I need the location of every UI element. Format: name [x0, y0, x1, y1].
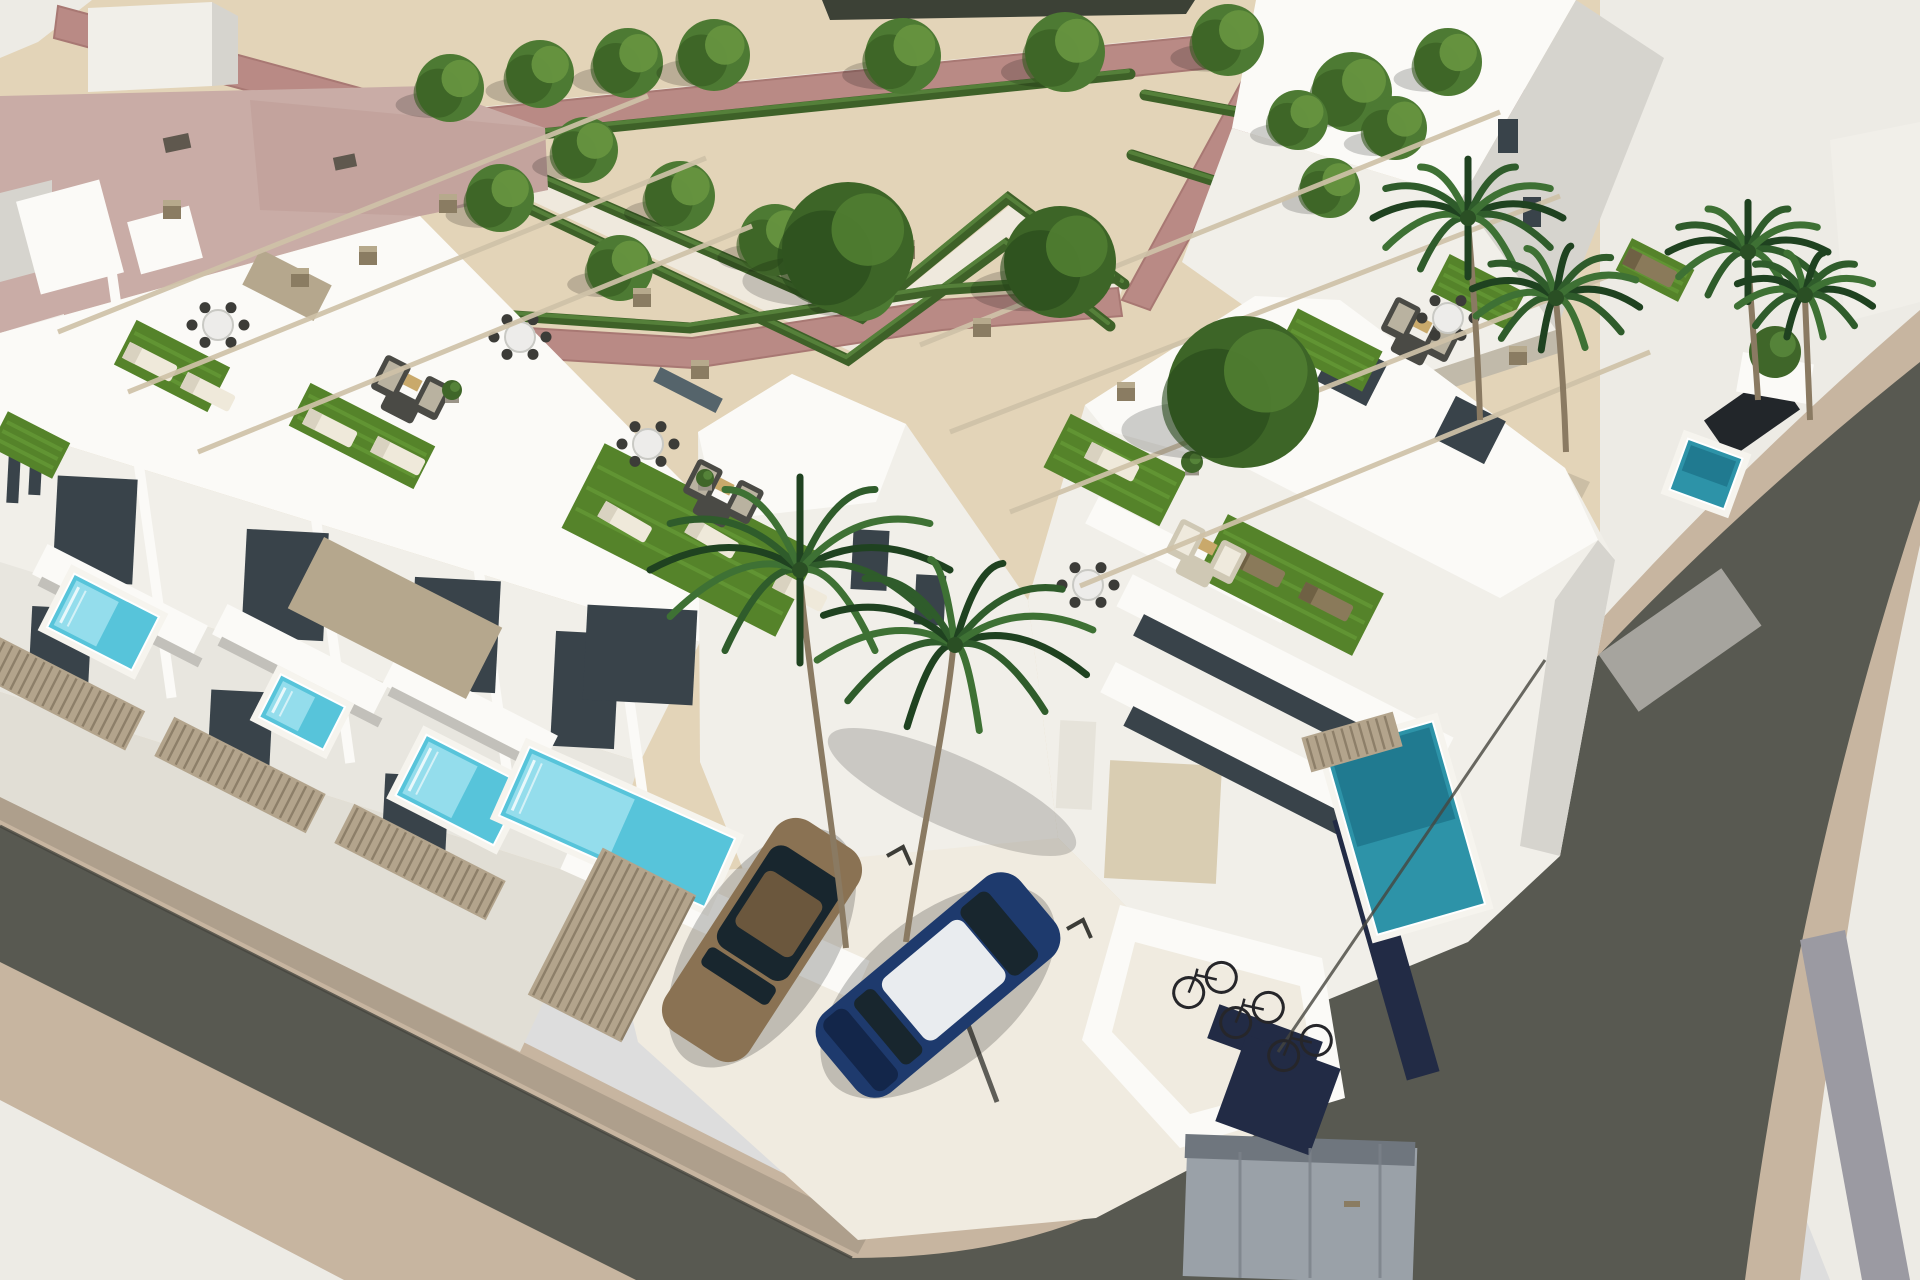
pergola-post-top — [633, 288, 651, 294]
pergola-post — [291, 273, 309, 287]
pergola-post — [1509, 351, 1527, 365]
tree-canopy-light — [1219, 10, 1259, 50]
pergola-post-top — [691, 360, 709, 366]
tree-canopy-light — [577, 123, 613, 159]
pergola-post-top — [1117, 382, 1135, 388]
dining-chair — [1070, 562, 1081, 573]
pergola-post — [359, 251, 377, 265]
dining-chair — [1096, 597, 1107, 608]
pergola-post-top — [1509, 346, 1527, 352]
tree-canopy-light — [832, 193, 905, 266]
small-building — [88, 2, 212, 92]
render-canvas — [0, 0, 1920, 1280]
pergola-post — [691, 365, 709, 379]
dining-chair — [630, 421, 641, 432]
pergola-post-top — [973, 318, 991, 324]
pergola-post — [439, 199, 457, 213]
pergola-post-top — [163, 200, 181, 206]
tree-canopy-light — [1387, 101, 1422, 136]
dining-chair — [656, 421, 667, 432]
plant-light — [703, 471, 712, 480]
pergola-post — [633, 293, 651, 307]
pergola-post — [1117, 387, 1135, 401]
pergola-post — [973, 323, 991, 337]
palm-crown-center — [1548, 290, 1564, 306]
dining-chair — [187, 320, 198, 331]
tree-canopy-light — [1224, 329, 1308, 413]
dining-chair — [200, 337, 211, 348]
dining-chair — [656, 456, 667, 467]
dining-chair — [1070, 597, 1081, 608]
tree-canopy-light — [1055, 19, 1099, 63]
dining-chair — [617, 439, 628, 450]
dining-chair — [1417, 313, 1428, 324]
tree-canopy-light — [1291, 95, 1324, 128]
pergola-post-top — [291, 268, 309, 274]
dining-table — [203, 310, 233, 340]
dining-chair — [541, 332, 552, 343]
tree-canopy-light — [619, 34, 658, 72]
tree-canopy-light — [705, 25, 745, 65]
palm-crown-center — [947, 637, 963, 653]
tree-canopy-light — [1440, 34, 1477, 71]
tree-canopy-light — [532, 46, 569, 83]
small-building-side — [212, 2, 238, 86]
palm-crown-center — [792, 562, 808, 578]
palm-crown-center — [1460, 210, 1476, 226]
tree-canopy-light — [492, 170, 529, 207]
tree-canopy-light — [1046, 216, 1108, 278]
pergola-post-top — [359, 246, 377, 252]
pergola-post-top — [439, 194, 457, 200]
dining-chair — [1096, 562, 1107, 573]
dining-chair — [200, 302, 211, 313]
tree-canopy-light — [671, 167, 710, 206]
plant-light — [1770, 331, 1796, 357]
glass-door — [583, 605, 698, 706]
tree-canopy-light — [442, 60, 479, 97]
tree-canopy-light — [1342, 59, 1386, 103]
dining-chair — [1109, 580, 1120, 591]
dining-chair — [226, 302, 237, 313]
pergola-post — [163, 205, 181, 219]
window — [1498, 119, 1518, 153]
palm-crown-center — [1797, 287, 1813, 303]
dining-chair — [239, 320, 250, 331]
dining-chair — [1456, 295, 1467, 306]
garage-door — [1104, 760, 1222, 884]
dining-chair — [1430, 295, 1441, 306]
dining-chair — [528, 349, 539, 360]
plant-light — [450, 382, 460, 392]
door — [1056, 720, 1097, 810]
dining-table — [633, 429, 663, 459]
dining-chair — [630, 456, 641, 467]
tree-canopy-light — [894, 24, 936, 66]
dining-chair — [502, 349, 513, 360]
dining-chair — [669, 439, 680, 450]
dining-table — [1433, 303, 1463, 333]
cabinet-handle — [1344, 1201, 1360, 1207]
potted-plant — [442, 380, 462, 403]
architectural-render — [0, 0, 1920, 1280]
potted-plant — [696, 469, 714, 491]
palm-crown-center — [1740, 244, 1756, 260]
dining-chair — [1430, 330, 1441, 341]
